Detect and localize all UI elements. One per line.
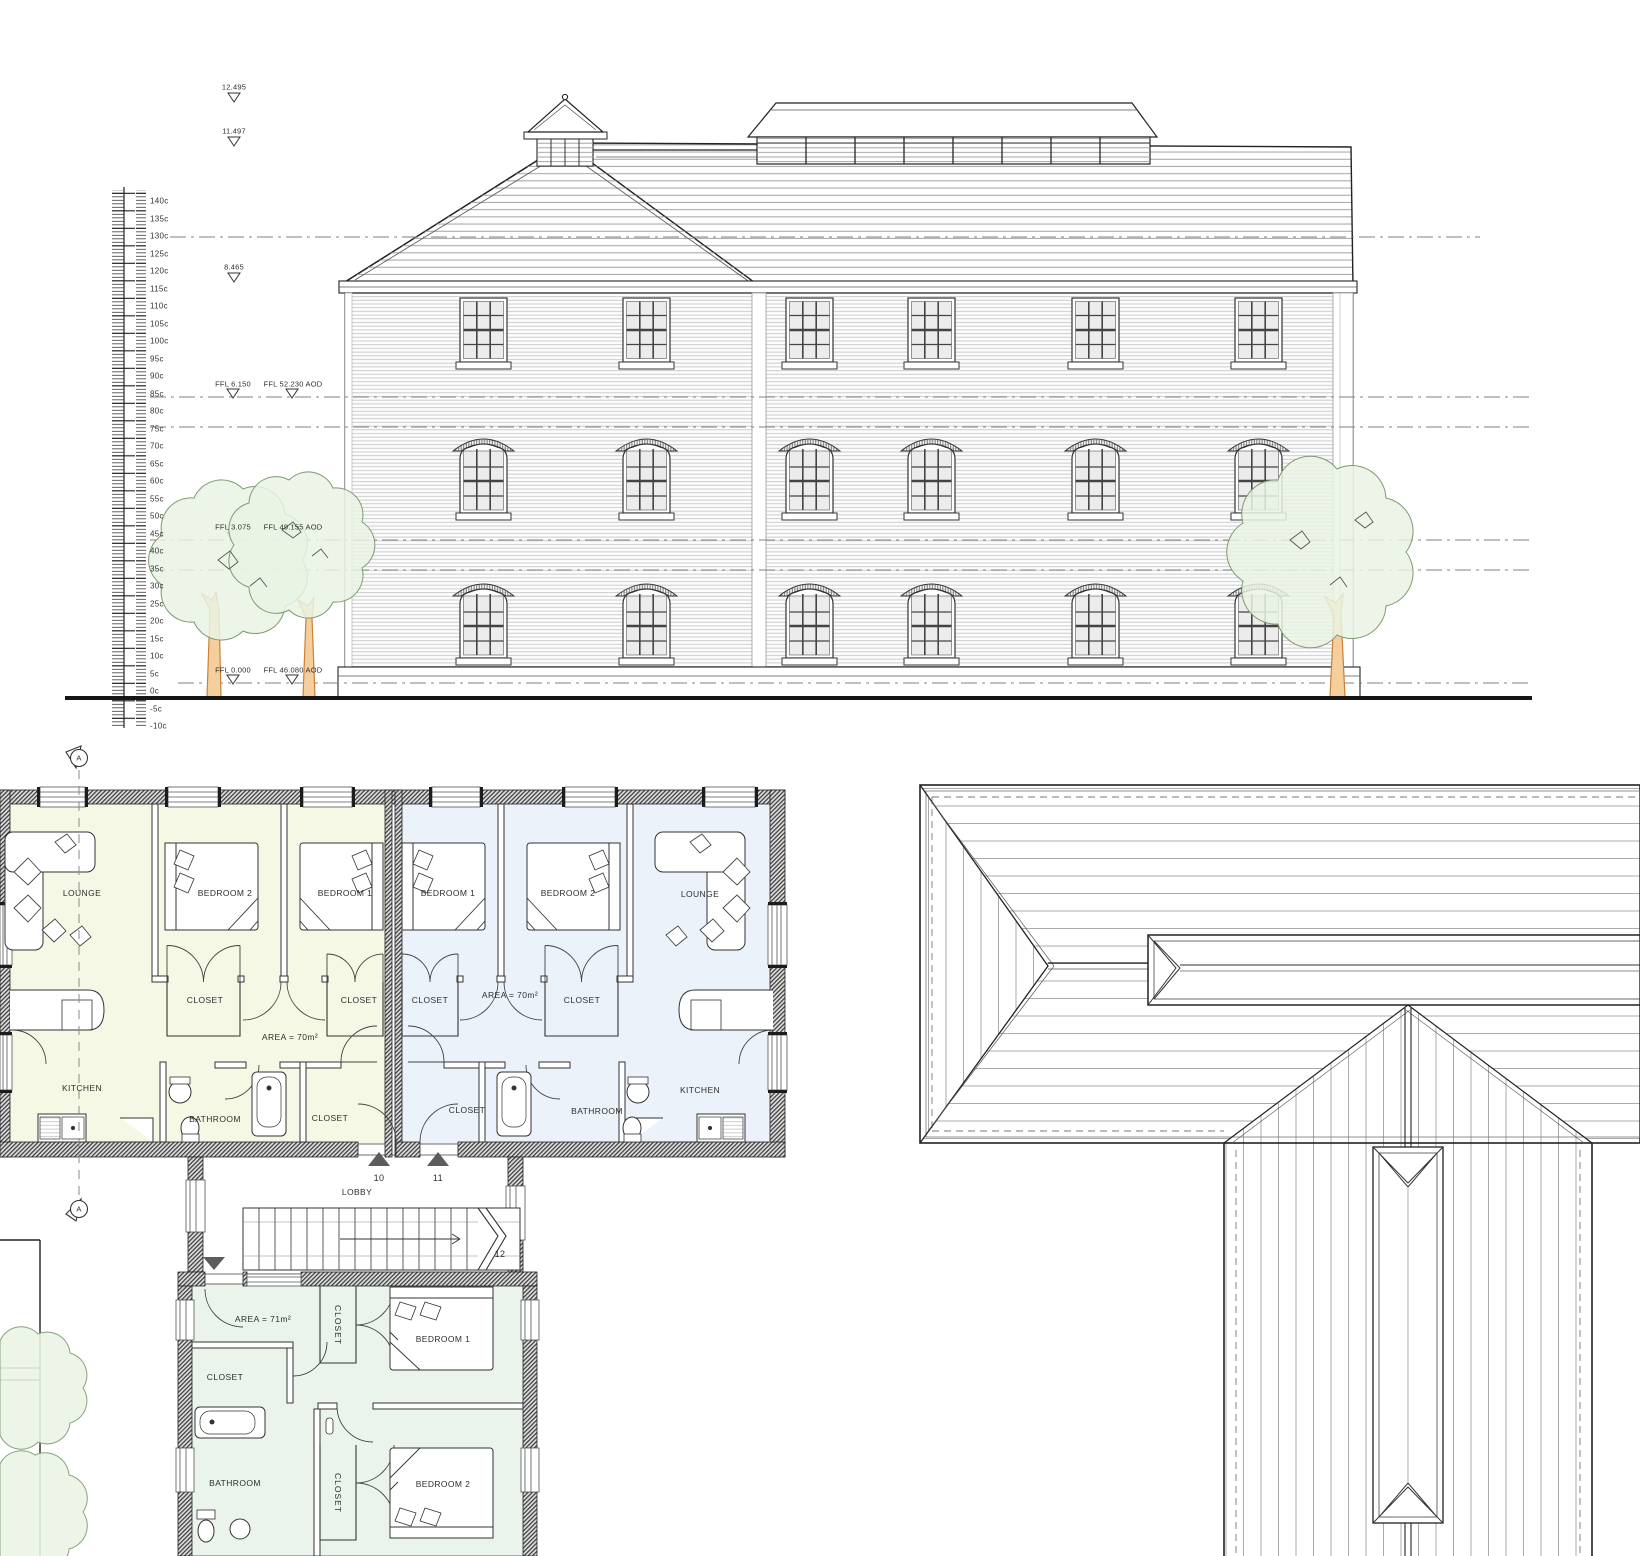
ruler-label: 50c [150, 512, 164, 521]
ruler-label: 65c [150, 459, 164, 468]
ruler-label: 35c [150, 564, 164, 573]
room-label-bedroom2: BEDROOM 2 [198, 888, 253, 898]
room-label-bedroom1: BEDROOM 1 [421, 888, 476, 898]
area-label: AREA = 71m² [235, 1314, 291, 1324]
ruler-label: 95c [150, 354, 164, 363]
ruler-label: -5c [150, 704, 162, 713]
ruler-label: 10c [150, 652, 164, 661]
ruler-label: 120c [150, 267, 169, 276]
ruler-label: 100c [150, 337, 169, 346]
door-number: 10 [374, 1173, 385, 1183]
ruler-label: 115c [150, 284, 168, 293]
area-label: AREA = 70m² [262, 1032, 318, 1042]
ruler-label: 0c [150, 687, 159, 696]
spot-level: 12.495 [222, 83, 246, 92]
ruler-label: 25c [150, 599, 164, 608]
room-label-kitchen: KITCHEN [62, 1083, 102, 1093]
ruler-label: 105c [150, 319, 169, 328]
room-label-bathroom: BATHROOM [189, 1114, 241, 1124]
ruler-label: 135c [150, 214, 169, 223]
ffl-label: FFL 0.000 [215, 666, 251, 675]
ground-line [65, 696, 1532, 700]
ffl-label: FFL 3.075 [215, 523, 251, 532]
room-label-bedroom2: BEDROOM 2 [541, 888, 596, 898]
ffl-aod-label: FFL 46.080 AOD [264, 666, 323, 675]
room-label-closet: CLOSET [412, 995, 448, 1005]
room-label-lobby: LOBBY [342, 1187, 372, 1197]
door-number: 11 [433, 1173, 443, 1183]
room-label-closet: CLOSET [449, 1105, 485, 1115]
spot-level: 11.497 [222, 127, 246, 136]
room-label-closet: CLOSET [341, 995, 377, 1005]
ruler-label: 55c [150, 494, 164, 503]
ffl-label: FFL 6.150 [215, 380, 251, 389]
ruler-label: 45c [150, 529, 164, 538]
scale-ruler [112, 187, 146, 728]
section-marker-label: A [76, 1205, 81, 1214]
ruler-label: 5c [150, 669, 159, 678]
ruler-label: 15c [150, 634, 164, 643]
elevation-building [338, 94, 1360, 698]
section-marker-label: A [76, 754, 81, 763]
spot-level: 8.465 [224, 263, 244, 272]
ruler-label: 130c [150, 232, 169, 241]
room-label-closet: CLOSET [333, 1473, 343, 1513]
ruler-label: 125c [150, 249, 169, 258]
ruler-label: 110c [150, 302, 168, 311]
ruler-label: 90c [150, 372, 164, 381]
room-label-bedroom1: BEDROOM 1 [416, 1334, 471, 1344]
ruler-label: 85c [150, 389, 164, 398]
ruler-label: -10c [150, 722, 167, 731]
room-label-closet: CLOSET [564, 995, 600, 1005]
ruler-label: 30c [150, 582, 164, 591]
ruler-label: 60c [150, 477, 164, 486]
room-label-lounge: LOUNGE [681, 889, 719, 899]
room-label-bedroom1: BEDROOM 1 [318, 888, 373, 898]
drawing-sheet: 12.495 11.497 8.465 FFL 6.150 FFL 52.230… [0, 0, 1640, 1556]
ffl-aod-label: FFL 52.230 AOD [264, 380, 323, 389]
room-label-closet: CLOSET [187, 995, 223, 1005]
room-label-bathroom: BATHROOM [209, 1478, 261, 1488]
stair-number: 12 [495, 1249, 506, 1259]
ruler-label: 70c [150, 442, 164, 451]
area-label: AREA = 70m² [482, 990, 538, 1000]
ruler-label: 75c [150, 424, 164, 433]
room-label-closet: CLOSET [333, 1305, 343, 1345]
room-label-lounge: LOUNGE [63, 888, 101, 898]
room-label-bedroom2: BEDROOM 2 [416, 1479, 471, 1489]
ruler-label: 80c [150, 407, 164, 416]
room-label-bathroom: BATHROOM [571, 1106, 623, 1116]
room-label-closet: CLOSET [207, 1372, 243, 1382]
ffl-aod-label: FFL 49.155 AOD [264, 523, 323, 532]
room-label-closet: CLOSET [312, 1113, 348, 1123]
roof-plan [920, 785, 1640, 1556]
room-label-kitchen: KITCHEN [680, 1085, 720, 1095]
ruler-label: 140c [150, 197, 169, 206]
stair [243, 1208, 520, 1270]
ruler-label: 40c [150, 547, 164, 556]
ruler-label: 20c [150, 617, 164, 626]
